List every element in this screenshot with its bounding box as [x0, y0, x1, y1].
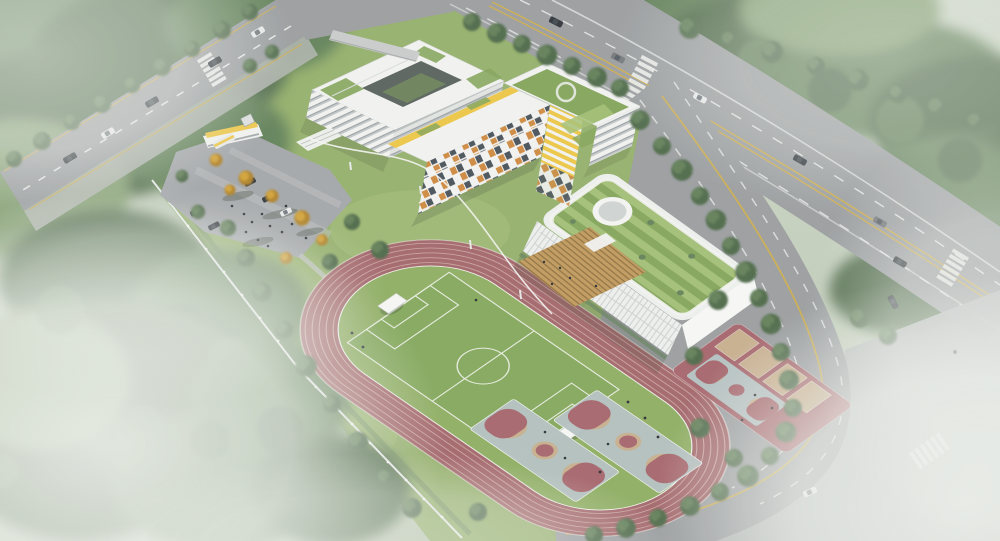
mist-overlays	[0, 0, 1000, 541]
aerial-campus-render	[0, 0, 1000, 541]
